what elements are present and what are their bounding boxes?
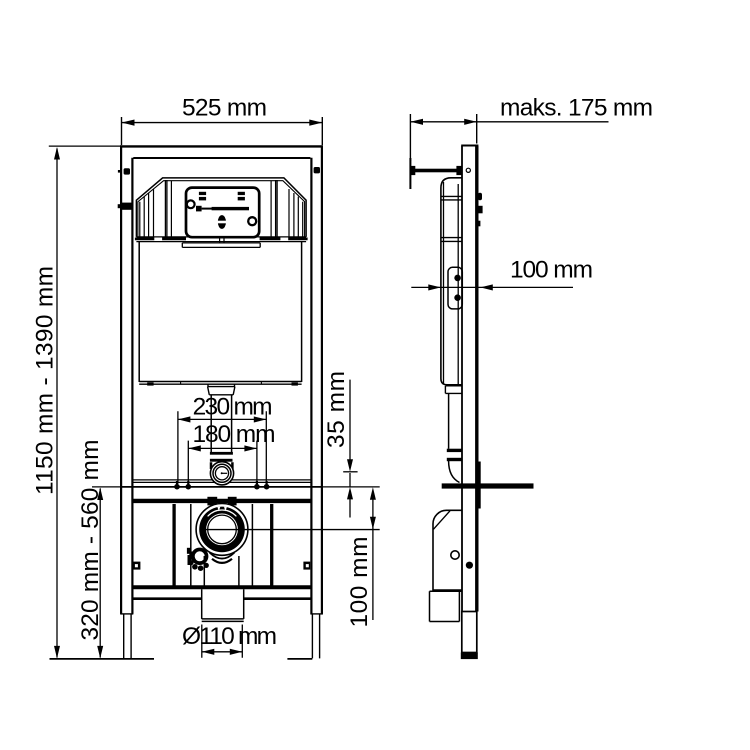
svg-text:35 mm: 35 mm <box>323 371 350 448</box>
svg-text:320 mm - 560 mm: 320 mm - 560 mm <box>77 440 104 641</box>
svg-text:230 mm: 230 mm <box>193 393 273 420</box>
svg-text:100 mm: 100 mm <box>346 537 373 628</box>
svg-text:1150 mm - 1390 mm: 1150 mm - 1390 mm <box>32 266 59 495</box>
svg-text:180 mm: 180 mm <box>193 421 276 448</box>
svg-text:100 mm: 100 mm <box>510 257 593 284</box>
svg-text:maks. 175 mm: maks. 175 mm <box>500 95 653 122</box>
svg-text:525 mm: 525 mm <box>182 95 267 122</box>
svg-text:Ø110 mm: Ø110 mm <box>182 623 277 650</box>
